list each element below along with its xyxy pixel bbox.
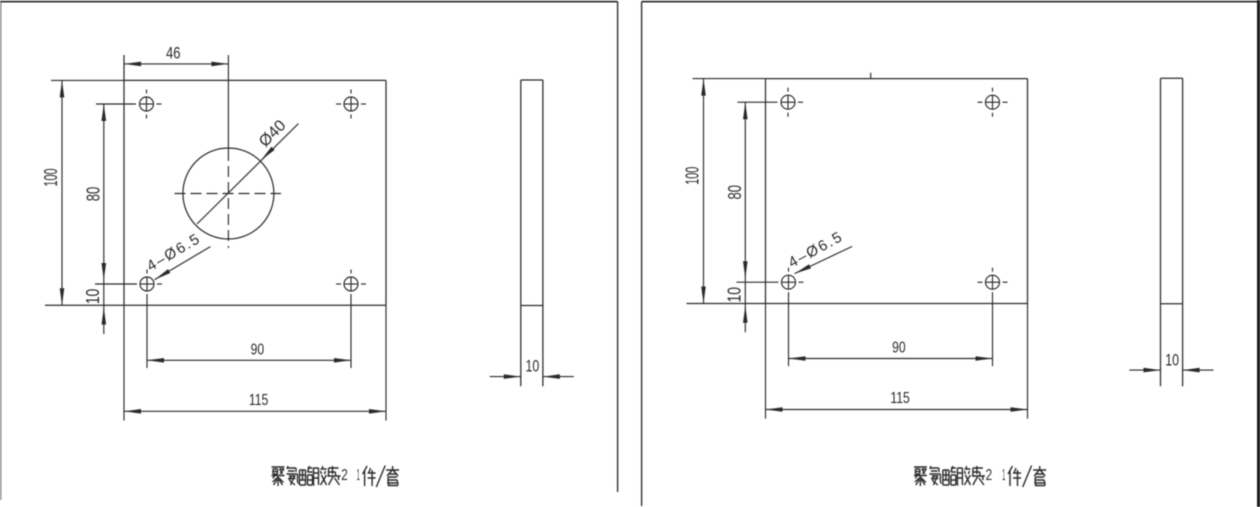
svg-text:90: 90 <box>892 340 906 357</box>
svg-text:115: 115 <box>249 392 269 409</box>
svg-text:1: 1 <box>1002 467 1005 484</box>
svg-text:2: 2 <box>986 467 993 484</box>
svg-text:10: 10 <box>725 287 745 303</box>
svg-text:80: 80 <box>725 185 745 200</box>
svg-text:80: 80 <box>83 187 103 202</box>
svg-text:115: 115 <box>890 390 910 407</box>
svg-text:10: 10 <box>1165 352 1179 370</box>
svg-text:2: 2 <box>341 467 348 484</box>
svg-text:10: 10 <box>83 289 103 305</box>
svg-text:46: 46 <box>166 44 181 63</box>
svg-text:100: 100 <box>41 169 61 187</box>
svg-text:90: 90 <box>251 341 265 358</box>
svg-text:100: 100 <box>682 167 702 185</box>
svg-text:1: 1 <box>357 467 360 484</box>
svg-text:10: 10 <box>526 358 540 376</box>
